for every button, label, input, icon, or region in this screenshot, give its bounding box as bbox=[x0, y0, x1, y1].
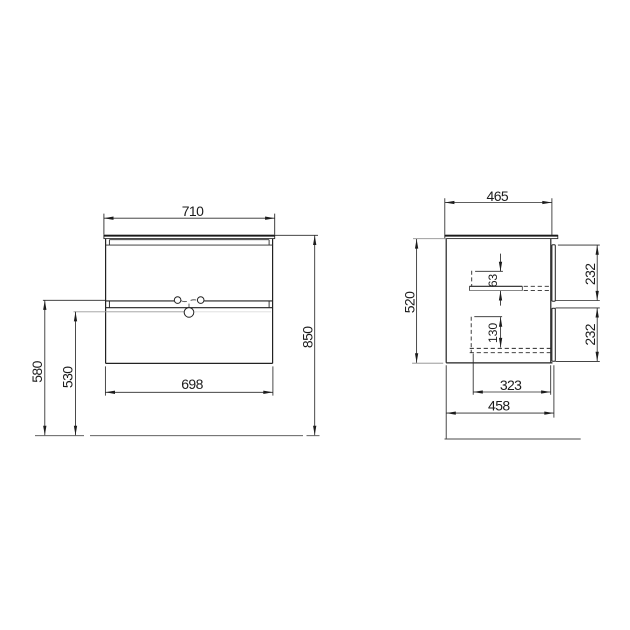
svg-text:530: 530 bbox=[59, 366, 75, 388]
svg-text:850: 850 bbox=[300, 326, 316, 348]
svg-text:580: 580 bbox=[29, 360, 45, 382]
svg-text:458: 458 bbox=[488, 398, 510, 414]
svg-text:710: 710 bbox=[182, 203, 204, 219]
svg-text:698: 698 bbox=[181, 376, 203, 392]
svg-text:520: 520 bbox=[402, 291, 418, 313]
svg-text:323: 323 bbox=[500, 377, 522, 393]
svg-text:232: 232 bbox=[582, 323, 598, 345]
svg-text:232: 232 bbox=[582, 263, 598, 285]
svg-text:465: 465 bbox=[487, 188, 509, 204]
svg-text:63: 63 bbox=[486, 274, 500, 288]
svg-text:130: 130 bbox=[486, 323, 500, 343]
